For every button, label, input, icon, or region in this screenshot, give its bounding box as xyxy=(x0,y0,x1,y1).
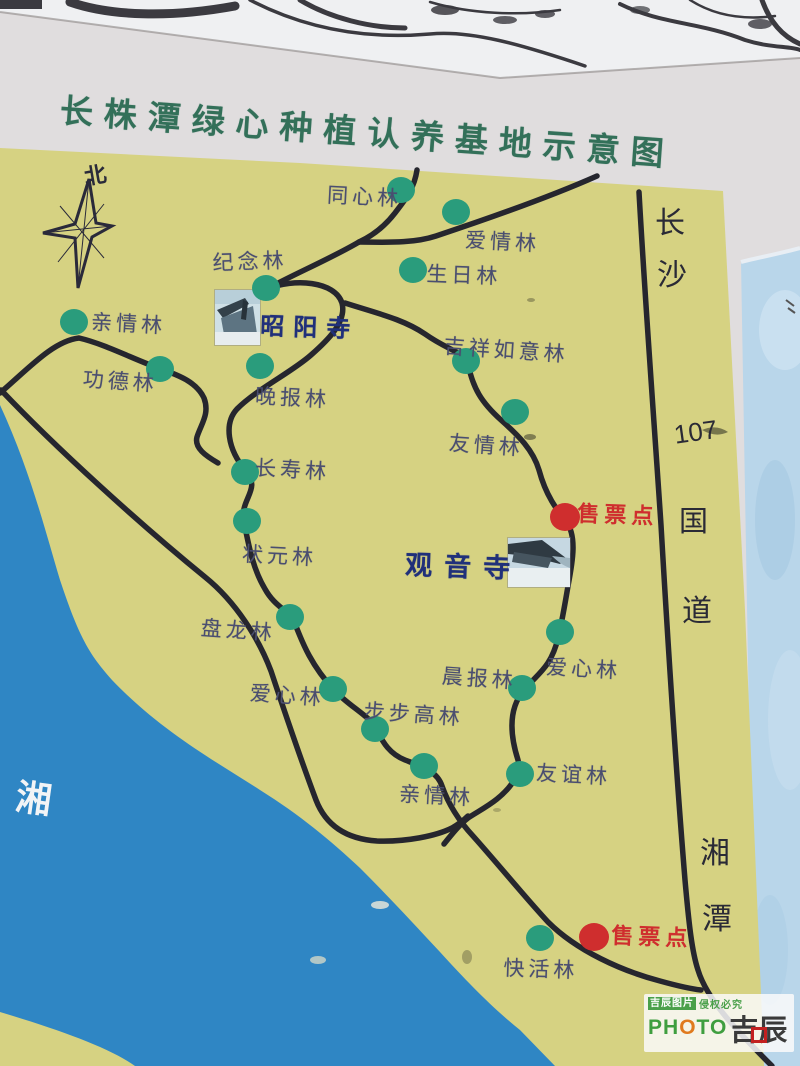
forest-dot xyxy=(506,761,534,787)
road-label: 107 xyxy=(672,414,719,451)
forest-label: 晚报林 xyxy=(254,380,330,414)
forest-label: 纪念林 xyxy=(212,244,288,277)
road-label: 国 xyxy=(679,498,708,540)
forest-label: 爱心林 xyxy=(249,677,326,712)
forest-dot xyxy=(252,275,280,301)
forest-dot xyxy=(246,353,274,379)
forest-dot xyxy=(501,399,529,425)
forest-label: 功德林 xyxy=(82,363,159,398)
ticket-point-dot xyxy=(550,503,580,531)
road-label: 潭 xyxy=(702,894,732,938)
forest-label: 生日林 xyxy=(426,258,502,291)
forest-dot xyxy=(233,508,261,534)
temple-label: 昭阳寺 xyxy=(260,306,360,344)
forest-label: 亲情林 xyxy=(90,306,166,340)
forest-label: 快活林 xyxy=(503,952,579,985)
forest-label: 亲情林 xyxy=(398,778,474,812)
watermark-brand-chip: 吉辰图片 xyxy=(648,997,696,1010)
forest-dot xyxy=(546,619,574,645)
watermark-photo-wordmark: PHOTO xyxy=(648,1016,727,1040)
forest-dot xyxy=(410,753,438,779)
forest-dot xyxy=(526,925,554,951)
photo-agency-watermark: 吉辰图片 侵权必究 PHOTO 吉辰 xyxy=(644,994,794,1052)
forest-dot xyxy=(276,604,304,630)
forest-dot xyxy=(60,309,88,335)
forest-label: 晨报林 xyxy=(441,660,518,695)
forest-label: 盘龙林 xyxy=(200,612,277,647)
forest-label: 友谊林 xyxy=(535,757,611,791)
forest-label: 爱心林 xyxy=(545,651,621,685)
ticket-point-dot xyxy=(579,923,609,951)
forest-label: 友情林 xyxy=(448,427,525,462)
river-name-label: 湘 xyxy=(13,768,56,825)
forest-dot xyxy=(399,257,427,283)
ticket-point-label: 售票点 xyxy=(611,918,693,953)
map-overlay: 长株潭绿心种植认养基地示意图 北 同心林爱情林生日林纪念林亲情林功德林晚报林吉祥… xyxy=(0,0,800,1066)
compass-north-label: 北 xyxy=(81,156,108,191)
sign-title: 长株潭绿心种植认养基地示意图 xyxy=(59,84,677,176)
road-label: 沙 xyxy=(657,250,687,294)
watermark-red-square xyxy=(751,1027,767,1043)
road-label: 道 xyxy=(682,586,712,630)
temple-label: 观音寺 xyxy=(405,543,523,586)
forest-label: 状元林 xyxy=(241,538,317,572)
ticket-point-label: 售票点 xyxy=(577,496,659,531)
forest-label: 长寿林 xyxy=(254,452,330,486)
forest-label: 同心林 xyxy=(326,179,402,213)
forest-dot xyxy=(442,199,470,225)
forest-label: 爱情林 xyxy=(464,224,540,258)
signboard-photo: 长株潭绿心种植认养基地示意图 北 同心林爱情林生日林纪念林亲情林功德林晚报林吉祥… xyxy=(0,0,800,1066)
road-label: 湘 xyxy=(700,828,730,872)
road-label: 长 xyxy=(655,198,685,242)
